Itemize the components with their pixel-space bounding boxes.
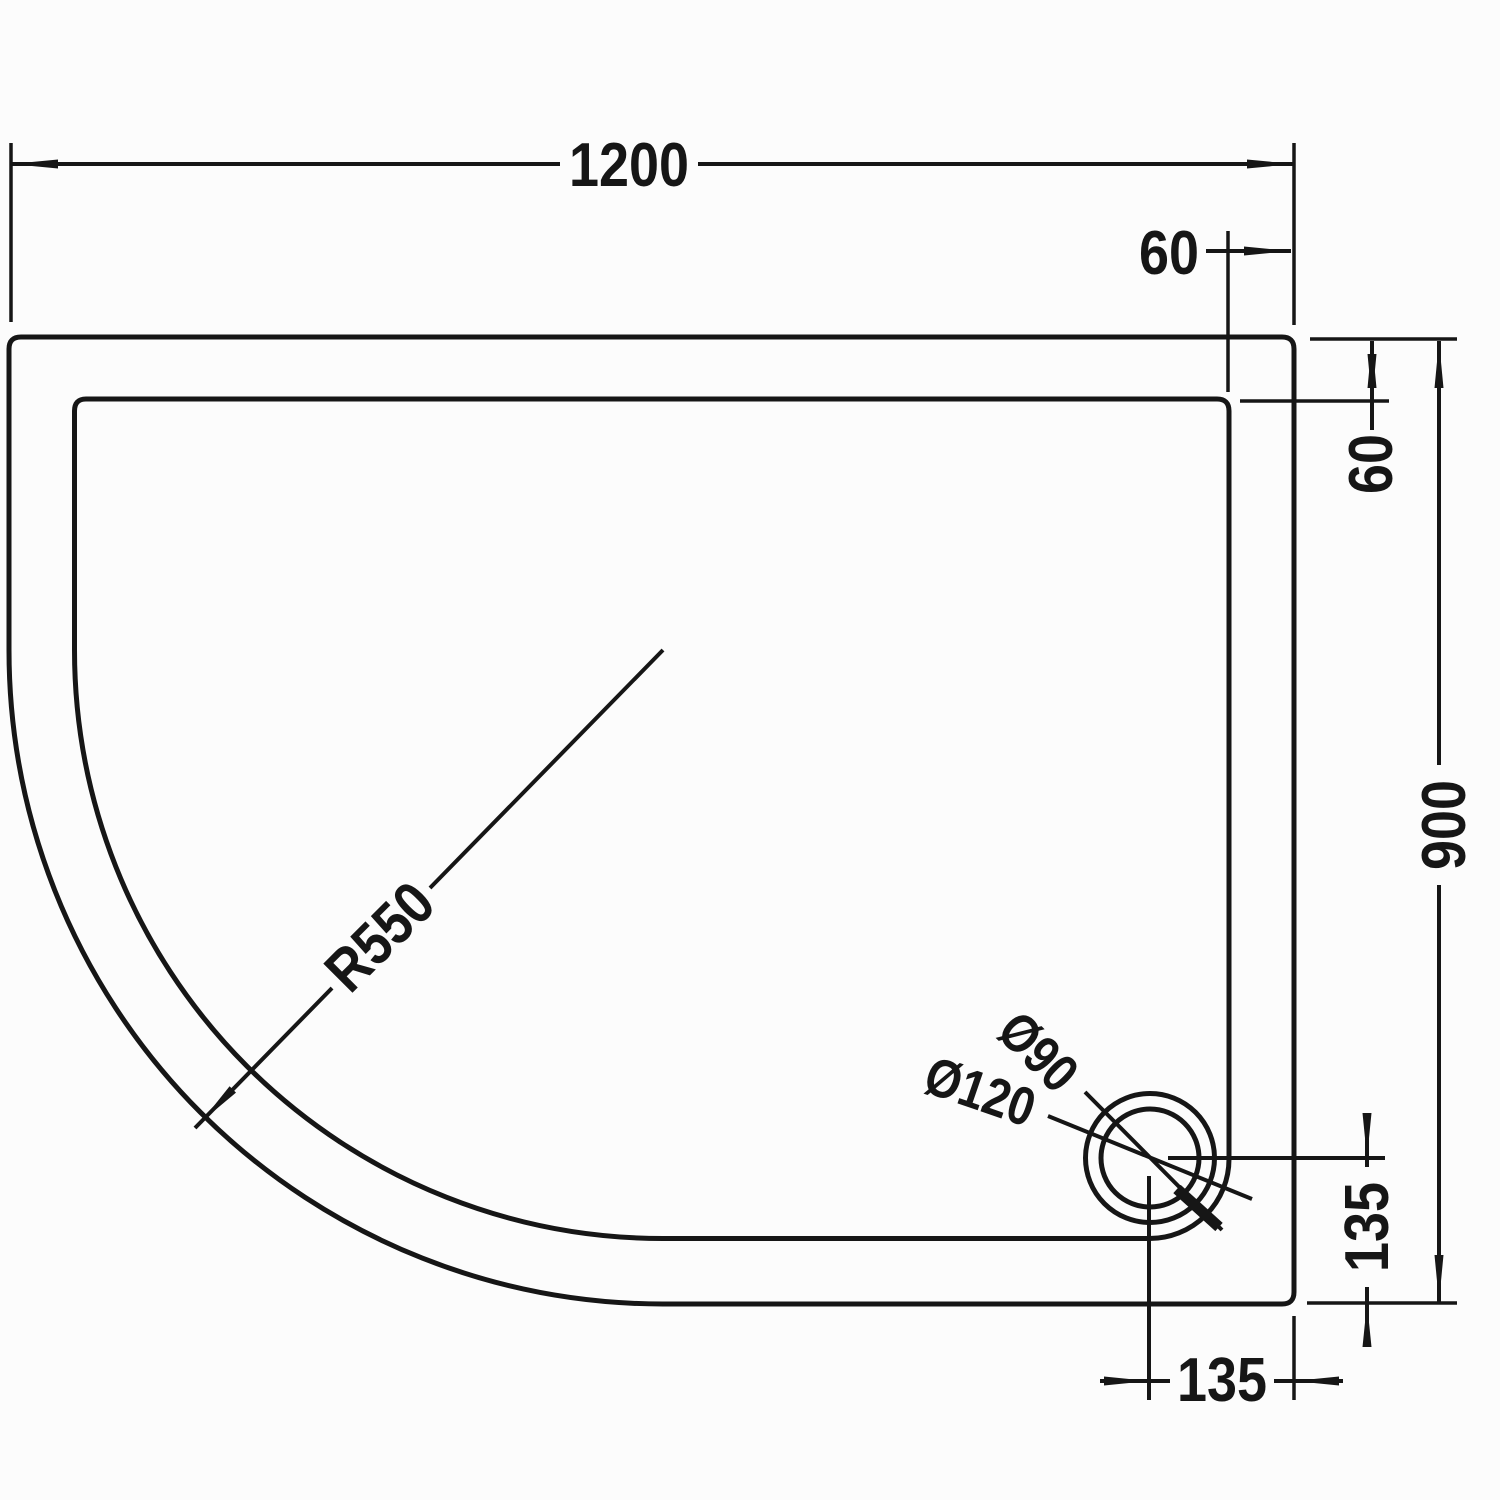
svg-text:135: 135 [1333,1182,1402,1272]
svg-text:900: 900 [1410,780,1479,870]
svg-text:1200: 1200 [569,131,689,200]
svg-text:135: 135 [1177,1346,1267,1415]
svg-text:60: 60 [1139,219,1199,288]
svg-text:60: 60 [1337,434,1406,494]
